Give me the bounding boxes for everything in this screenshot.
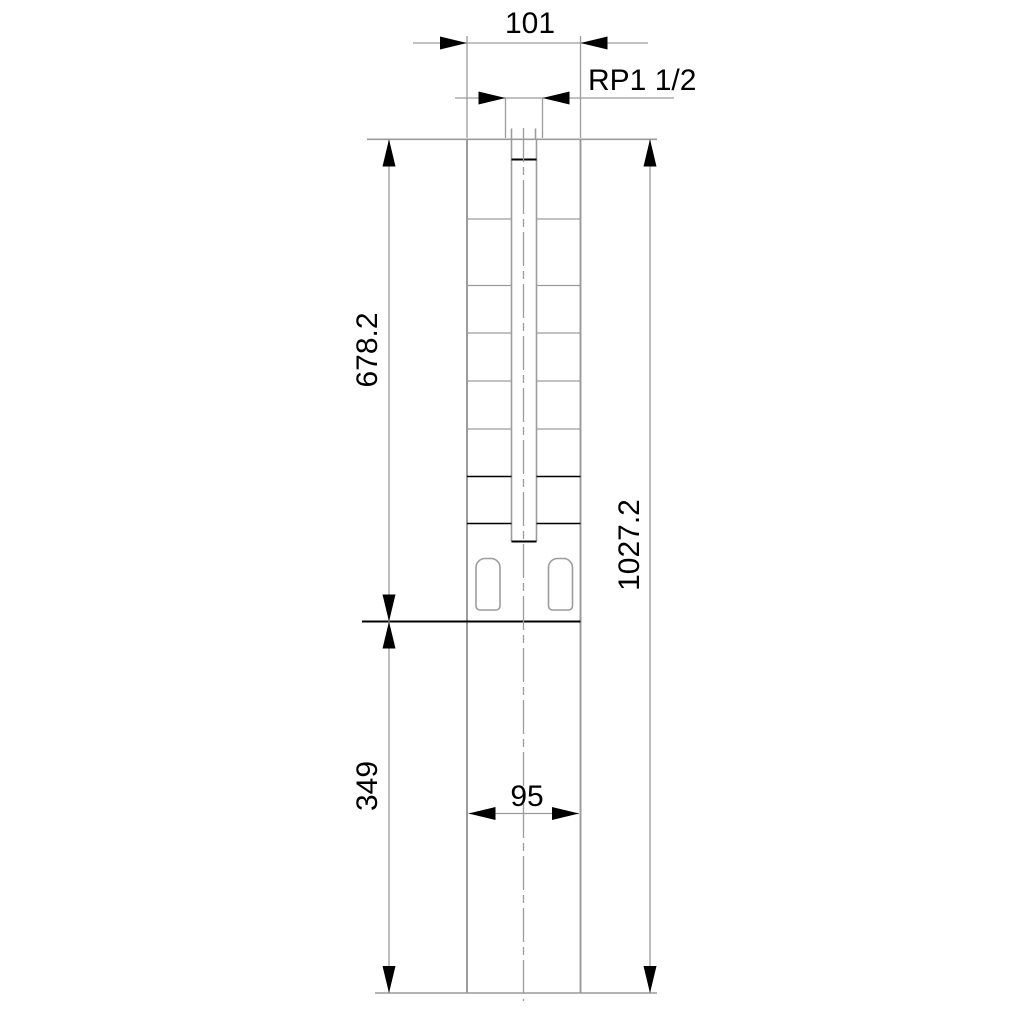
dimension-label-overall-length: 1027.2 [613, 499, 646, 591]
drawing-canvas: 101 RP1 1/2 678.2 349 1027.2 95 [0, 0, 1024, 1024]
arrowhead-right-icon [552, 807, 579, 820]
arrowhead-left-icon [581, 37, 608, 50]
arrowhead-left-icon [469, 807, 496, 820]
arrowhead-up-icon [383, 622, 396, 649]
cable-slots [476, 559, 573, 611]
dimension-label-top-width: 101 [505, 7, 555, 40]
pump-outline [362, 128, 581, 1001]
arrowhead-right-icon [440, 37, 467, 50]
arrowhead-down-icon [383, 595, 396, 622]
dimension-left-chain: 678.2 349 [351, 139, 396, 993]
cable-slot-left [476, 559, 500, 611]
arrowhead-up-icon [383, 139, 396, 166]
arrowhead-right-icon [479, 92, 506, 105]
dimension-label-lower-section: 349 [351, 761, 384, 811]
arrowhead-left-icon [543, 92, 570, 105]
arrowhead-down-icon [644, 966, 657, 993]
cable-slot-right [549, 559, 573, 611]
arrowhead-down-icon [383, 966, 396, 993]
dimension-thread: RP1 1/2 [455, 64, 696, 138]
dimension-overall-length: 1027.2 [613, 139, 657, 993]
dimension-label-lower-width: 95 [510, 780, 543, 813]
pump-dimension-drawing: 101 RP1 1/2 678.2 349 1027.2 95 [0, 0, 1024, 1024]
arrowhead-up-icon [644, 139, 657, 166]
dimension-label-thread: RP1 1/2 [588, 64, 696, 97]
dimension-label-upper-section: 678.2 [351, 312, 384, 387]
dimension-lower-width: 95 [469, 780, 580, 820]
